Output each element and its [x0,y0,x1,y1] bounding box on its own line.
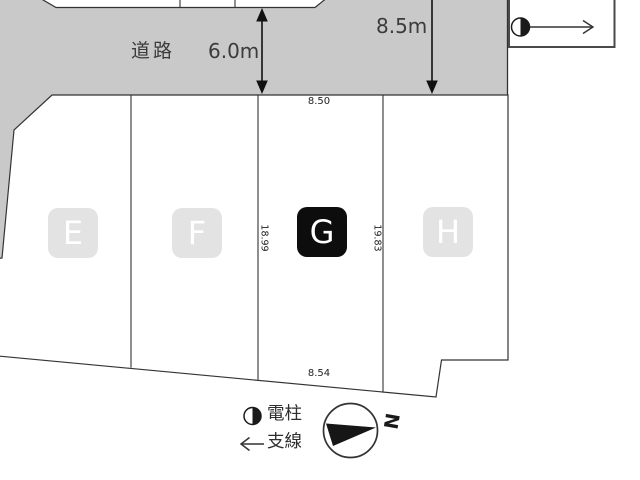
road-east-width-label: 8.5m [376,16,427,36]
utility-pole-icon [512,18,530,36]
site-plan: 道路 6.0m 8.5m 8.50 18.99 19.83 8.54 E F G… [0,0,640,480]
legend-guy-wire-arrow-icon [241,438,264,451]
dimension-bottom: 8.54 [299,369,339,379]
north-compass-icon [324,404,378,458]
lot-badge-h[interactable]: H [423,207,473,257]
legend-utility-pole-icon [244,408,261,425]
road-label: 道路 [131,42,175,61]
dimension-left: 18.99 [259,224,270,251]
road-width-label: 6.0m [208,41,259,61]
opposite-lots-shape [38,0,328,8]
lot-badge-g-highlighted[interactable]: G [297,207,347,257]
lot-badge-f[interactable]: F [172,208,222,258]
legend-pole-label: 電柱 [267,406,302,424]
dimension-right: 19.83 [372,224,383,251]
dimension-top: 8.50 [299,97,339,107]
lot-badge-e[interactable]: E [48,208,98,258]
legend-guy-wire-label: 支線 [267,434,302,452]
